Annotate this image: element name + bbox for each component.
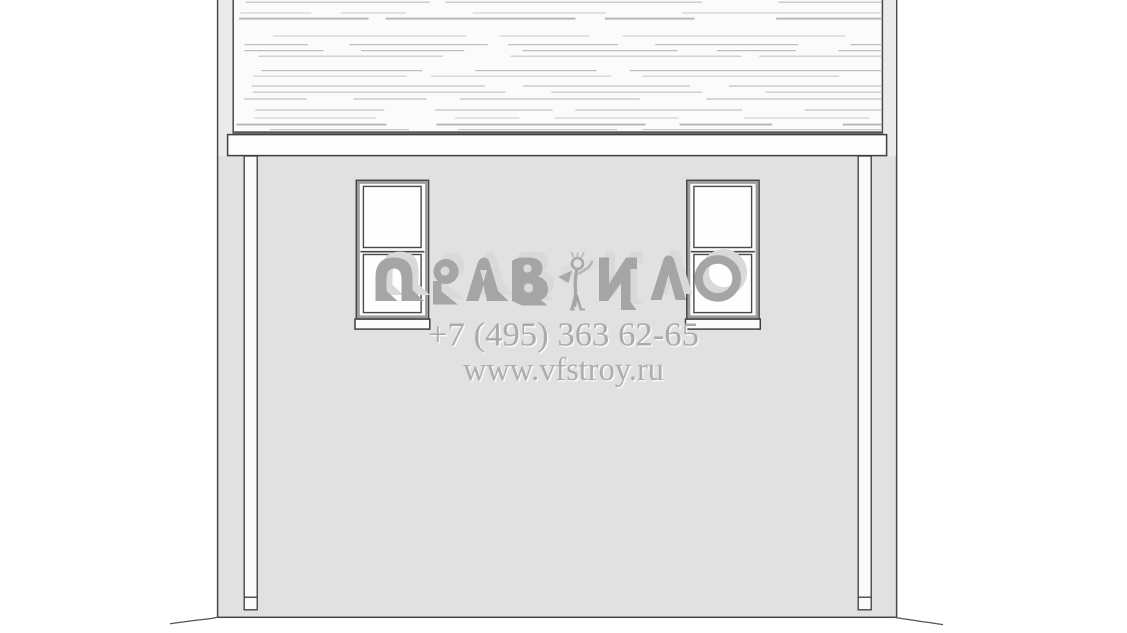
svg-text:www.vfstroy.ru: www.vfstroy.ru	[463, 352, 664, 388]
svg-text:+7 (495) 363 62-65: +7 (495) 363 62-65	[428, 316, 699, 353]
